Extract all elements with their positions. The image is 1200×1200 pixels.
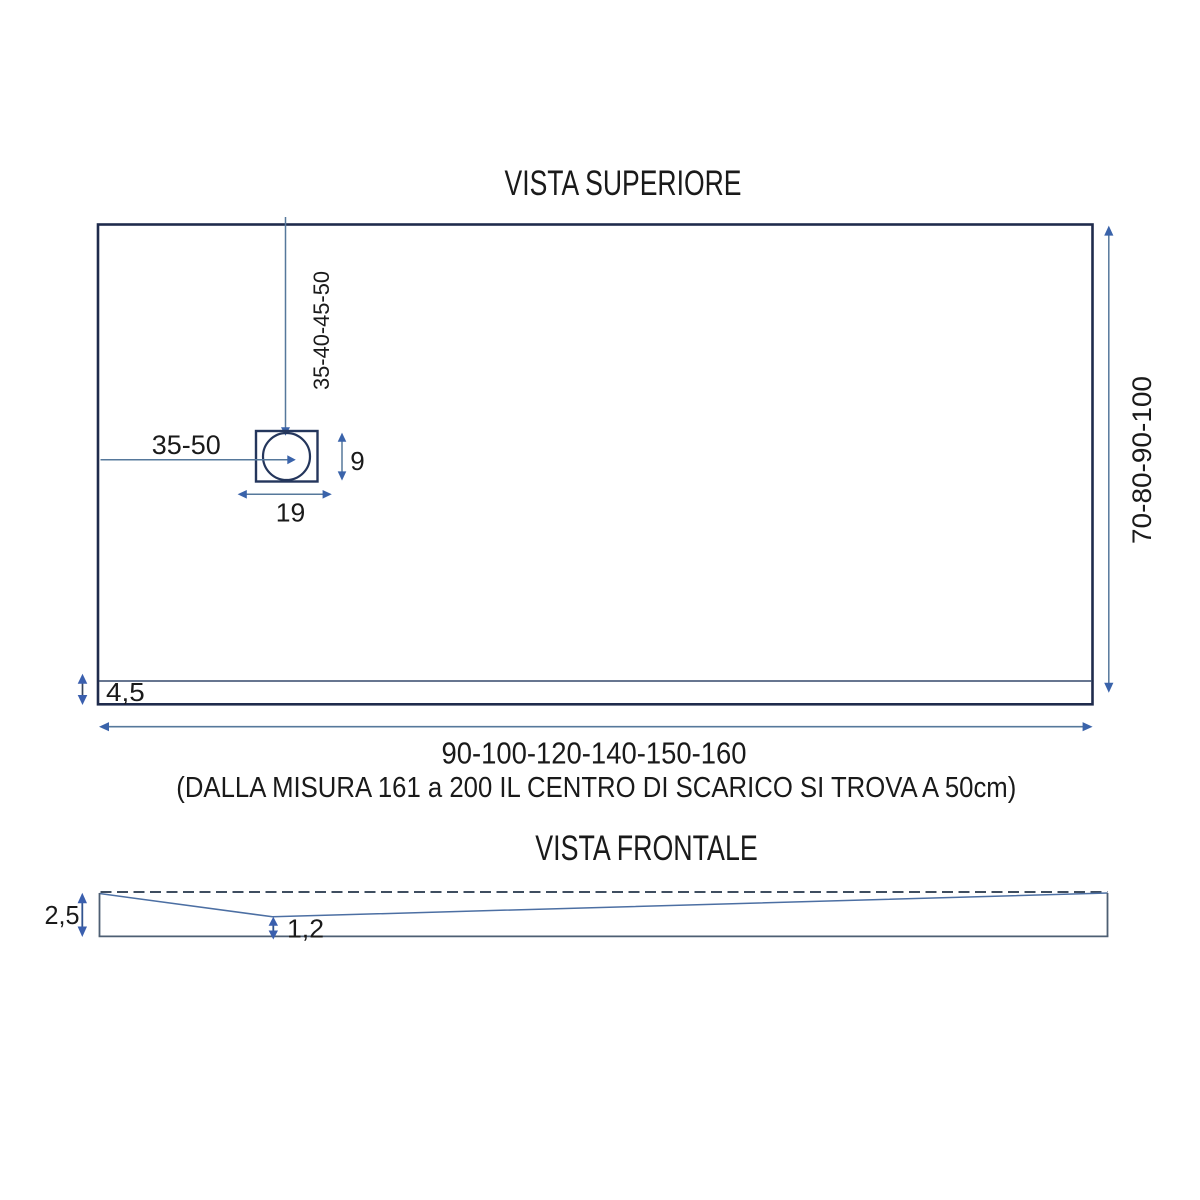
svg-text:90-100-120-140-150-160: 90-100-120-140-150-160 [442,736,747,771]
svg-text:1,2: 1,2 [287,914,324,944]
svg-text:19: 19 [276,500,306,528]
svg-text:9: 9 [350,446,364,476]
svg-text:(DALLA MISURA 161 a 200 IL CEN: (DALLA MISURA 161 a 200 IL CENTRO DI SCA… [176,772,1016,804]
svg-text:35-40-45-50: 35-40-45-50 [309,271,334,390]
svg-text:VISTA FRONTALE: VISTA FRONTALE [535,829,758,868]
svg-text:2,5: 2,5 [45,900,80,930]
svg-text:4,5: 4,5 [106,677,145,707]
svg-text:35-50: 35-50 [152,430,221,460]
svg-text:70-80-90-100: 70-80-90-100 [1127,376,1157,544]
svg-text:VISTA SUPERIORE: VISTA SUPERIORE [505,164,742,203]
